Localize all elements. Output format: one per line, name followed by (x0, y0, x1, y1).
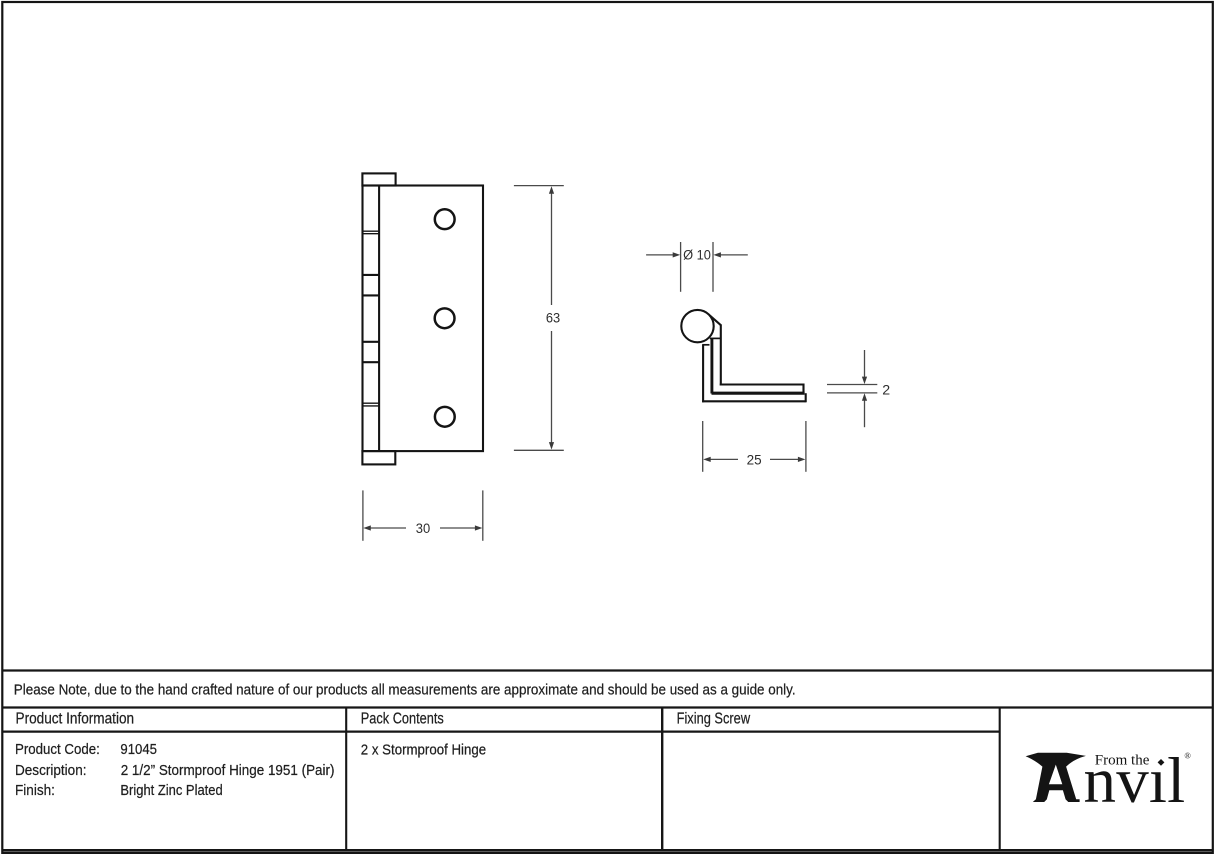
svg-text:Bright Zinc Plated: Bright Zinc Plated (120, 783, 222, 799)
svg-text:Description:: Description: (15, 763, 87, 779)
svg-text:Pack Contents: Pack Contents (361, 711, 444, 728)
svg-text:30: 30 (416, 521, 430, 537)
svg-text:Product Information: Product Information (16, 711, 135, 728)
svg-text:From the: From the (1095, 753, 1150, 769)
svg-text:Fixing Screw: Fixing Screw (677, 711, 751, 728)
svg-text:Product Code:: Product Code: (15, 742, 100, 758)
svg-text:2 x Stormproof Hinge: 2 x Stormproof Hinge (361, 742, 486, 758)
svg-text:25: 25 (747, 452, 762, 468)
svg-text:91045: 91045 (120, 742, 157, 758)
svg-text:®: ® (1184, 750, 1191, 760)
svg-text:Finish:: Finish: (15, 783, 55, 799)
svg-text:2 1/2” Stormproof Hinge 1951 (: 2 1/2” Stormproof Hinge 1951 (Pair) (121, 763, 335, 779)
svg-text:63: 63 (546, 310, 560, 326)
svg-text:2: 2 (882, 382, 890, 398)
svg-text:Ø 10: Ø 10 (683, 248, 711, 264)
svg-text:Please Note, due to the hand c: Please Note, due to the hand crafted nat… (14, 683, 796, 699)
